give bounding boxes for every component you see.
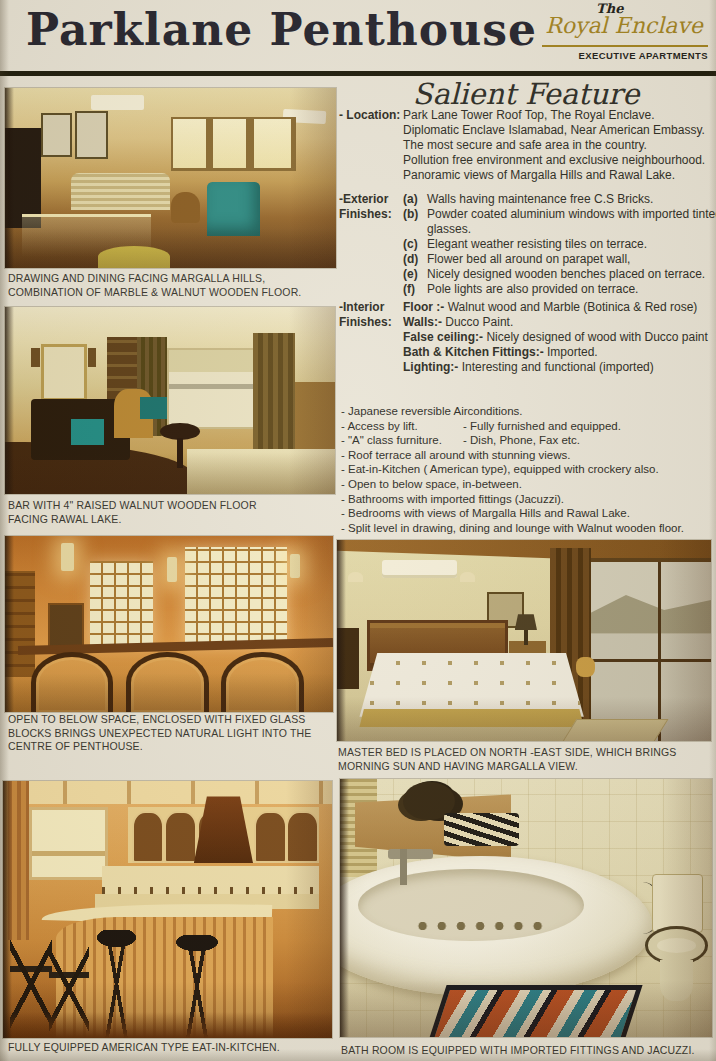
caption-kitchen: FULLY EQUIPPED AMERICAN TYPE EAT-IN-KITC… [8, 1041, 338, 1055]
interior-finishes-block: -Interior Finishes: Floor :- Walnut wood… [339, 300, 716, 375]
wall-picture-shape [75, 111, 109, 158]
feature-text: - Japanese reversible Airconditions. [341, 404, 523, 419]
window-shape [173, 119, 206, 168]
curtain-tieback-shape [576, 657, 595, 677]
item-key: (b) [403, 207, 427, 237]
ottoman-shape [98, 246, 171, 268]
feature-text: - Bathrooms with imported fittings (Jacu… [341, 492, 564, 507]
item-text: Elegant weather resisting tiles on terra… [427, 237, 716, 252]
item-text: Powder coated aluminium windows with imp… [427, 207, 716, 237]
toilet-tank-shape [652, 874, 702, 933]
feature-text: - Split level in drawing, dining and lou… [341, 521, 684, 536]
window-mullion-shape [588, 659, 711, 662]
exterior-item: (f)Pole lights are also provided on terr… [403, 282, 716, 297]
item-text: Interesting and functional (imported) [462, 360, 654, 374]
dresser-shape [337, 628, 359, 688]
item-key: (e) [403, 267, 427, 282]
cabinet-door-shape [164, 811, 197, 862]
item-text: Ducco Paint. [445, 315, 513, 329]
photo-kitchen [3, 781, 332, 1038]
salient-feature-heading: Salient Feature [340, 77, 712, 111]
interior-item: Walls:- Ducco Paint. [403, 315, 716, 330]
feature-text: - Open to below space, in-between. [341, 477, 522, 492]
interior-items: Floor :- Walnut wood and Marble (Botinic… [403, 300, 716, 375]
towel-stack-shape [444, 813, 518, 847]
exterior-label-line2: Finishes: [339, 207, 403, 222]
exterior-item: (e)Nicely designed wooden benches placed… [403, 267, 716, 282]
window-sill-shape [32, 851, 104, 856]
wall-picture-shape [41, 113, 71, 157]
lake-view-window-shape [167, 348, 257, 429]
cabinet-door-shape [286, 811, 319, 862]
location-lines: Park Lane Tower Roof Top, The Royal Encl… [403, 108, 705, 183]
window-mullion-shape [658, 562, 661, 741]
feature-text: - "A" class furniture. [341, 433, 463, 448]
location-line: The most secure and safe area in the cou… [403, 138, 705, 153]
royal-enclave-logo: The Royal Enclave EXECUTIVE APARTMENTS [538, 1, 710, 67]
sofa-shape [71, 173, 170, 211]
glossy-floor-shape [187, 449, 336, 494]
exterior-item: (a)Walls having maintenance free C.S Bri… [403, 192, 716, 207]
page-title: Parklane Penthouse [26, 4, 537, 55]
glass-block-wall-shape [90, 561, 152, 645]
feature-text: - Access by lift. [341, 419, 463, 434]
railing-arch-shape [126, 652, 208, 712]
exterior-label-line1: -Exterior [339, 192, 403, 207]
feature-text: - Eat-in-Kitchen ( American type), equip… [341, 462, 659, 477]
rug-shape [561, 719, 668, 741]
interior-label-line1: -Interior [339, 300, 403, 315]
teal-armchair-shape [207, 182, 260, 236]
wall-lamp-shape [61, 543, 74, 571]
air-conditioner-shape [91, 95, 144, 109]
sconce-shape [88, 348, 96, 367]
side-table-shape [171, 192, 201, 223]
feature-text: - Dish, Phone, Fax etc. [463, 433, 580, 448]
location-line: Pollution free environment and exclusive… [403, 153, 705, 168]
header-divider-rule [0, 71, 716, 76]
blind-shape [169, 350, 255, 371]
window-shape [254, 119, 292, 168]
exterior-items: (a)Walls having maintenance free C.S Bri… [403, 192, 716, 297]
shower-hose-shape [400, 849, 407, 885]
exterior-item: (b)Powder coated aluminium windows with … [403, 207, 716, 237]
curtain-shape [253, 333, 296, 455]
railing-arch-shape [31, 652, 113, 712]
item-key: (d) [403, 252, 427, 267]
item-key: Bath & Kitchen Fittings:- [403, 345, 544, 359]
interior-item: Lighting:- Interesting and functional (i… [403, 360, 716, 375]
floral-bedspread-shape [359, 653, 583, 717]
bed-skirt-shape [359, 709, 583, 727]
item-text: Walnut wood and Marble (Botinica & Red r… [448, 300, 698, 314]
toilet-seat-shape [645, 926, 708, 965]
logo-underline-rule [542, 45, 708, 47]
hill-silhouette-shape [588, 591, 711, 634]
item-text: Flower bed all around on parapet wall, [427, 252, 716, 267]
feature-row: - Roof terrace all around with stunning … [341, 448, 716, 463]
logo-name-text: Royal Enclave [538, 13, 710, 38]
caption-bar: BAR WITH 4" RAISED WALNUT WOODEN FLOOR F… [8, 499, 338, 526]
interior-label: -Interior Finishes: [339, 300, 403, 375]
sconce-shape [31, 348, 39, 367]
interior-item: Floor :- Walnut wood and Marble (Botinic… [403, 300, 716, 315]
location-line: Panoramic views of Margalla Hills and Ra… [403, 168, 705, 183]
margalla-view-window-shape [584, 558, 711, 741]
teal-cushion-shape [140, 397, 166, 419]
kitchen-window-shape [29, 807, 107, 880]
location-line: Park Lane Tower Roof Top, The Royal Encl… [403, 108, 705, 123]
item-text: Pole lights are also provided on terrace… [427, 282, 716, 297]
feature-text: - Fully furnished and equipped. [463, 419, 621, 434]
photo-master-bedroom [337, 540, 711, 741]
location-label: - Location: [339, 108, 403, 183]
window-shape [213, 119, 246, 168]
wall-lamp-shape [290, 554, 300, 579]
item-key: Lighting:- [403, 360, 458, 374]
wall-lamp-shape [167, 557, 177, 582]
item-text: Nicely designed wooden benches placed on… [427, 267, 716, 282]
interior-label-line2: Finishes: [339, 315, 403, 330]
mirror-shape [41, 344, 87, 400]
item-key: False ceiling:- [403, 330, 483, 344]
feature-list: - Japanese reversible Airconditions. - A… [341, 404, 716, 535]
curtain-shape [3, 781, 29, 940]
feature-row: - Open to below space, in-between. [341, 477, 716, 492]
table-lamp-shape [515, 614, 537, 630]
sconce-shape [348, 572, 363, 582]
photo-bar [5, 307, 335, 494]
caption-drawing-dining: DRAWING AND DINING FACING MARGALLA HILLS… [8, 272, 338, 299]
feature-row: - Split level in drawing, dining and lou… [341, 521, 716, 536]
sconce-shape [460, 572, 475, 582]
feature-row: - Eat-in-Kitchen ( American type), equip… [341, 462, 716, 477]
brochure-page: { "palette": {"gold": "#a3831e", "ink": … [0, 0, 716, 1061]
lamp-stem-shape [524, 630, 528, 644]
faucet-shape [388, 849, 433, 859]
caption-bathroom: BATH ROOM IS EQUIPPED WITH IMPORTED FITT… [341, 1044, 715, 1058]
tub-jets-shape [413, 920, 550, 931]
photo-drawing-dining [5, 88, 336, 268]
caption-open-to-below: OPEN TO BELOW SPACE, ENCLOSED WITH FIXED… [8, 713, 338, 754]
location-line: Diplomatic Enclave Islamabad, Near Ameri… [403, 123, 705, 138]
teal-cushion-shape [71, 419, 104, 445]
ceiling-shape [3, 781, 332, 804]
toilet-base-shape [660, 960, 693, 1001]
interior-item: Bath & Kitchen Fittings:- Imported. [403, 345, 716, 360]
feature-row: - Bedrooms with views of Margalla Hills … [341, 506, 716, 521]
furniture-shape [295, 382, 335, 457]
glass-block-wall-shape [185, 547, 287, 646]
window-band-shape [171, 117, 297, 171]
lake-horizon-shape [169, 384, 255, 389]
feature-text: - Bedrooms with views of Margalla Hills … [341, 506, 630, 521]
air-conditioner-shape [382, 560, 457, 578]
item-key: (c) [403, 237, 427, 252]
floor-shape [3, 1012, 332, 1038]
cabinet-door-shape [254, 811, 287, 862]
railing-arch-shape [221, 652, 303, 712]
feature-text: - Roof terrace all around with stunning … [341, 448, 570, 463]
item-text: Nicely designed of wood with Ducco paint [486, 330, 707, 344]
item-text: Imported. [547, 345, 598, 359]
item-key: Walls:- [403, 315, 442, 329]
item-key: (a) [403, 192, 427, 207]
exterior-label: -Exterior Finishes: [339, 192, 403, 297]
interior-item: False ceiling:- Nicely designed of wood … [403, 330, 716, 345]
item-key: Floor :- [403, 300, 444, 314]
feature-row: - Japanese reversible Airconditions. [341, 404, 716, 419]
cabinet-shape [5, 571, 35, 677]
exterior-item: (c)Elegant weather resisting tiles on te… [403, 237, 716, 252]
photo-bathroom [340, 779, 712, 1037]
photo-open-to-below [5, 536, 333, 712]
location-block: - Location: Park Lane Tower Roof Top, Th… [339, 108, 716, 183]
feature-row: - Bathrooms with imported fittings (Jacu… [341, 492, 716, 507]
caption-master-bed: MASTER BED IS PLACED ON NORTH -EAST SIDE… [338, 746, 712, 773]
exterior-finishes-block: -Exterior Finishes: (a)Walls having main… [339, 192, 716, 297]
kilim-rug-shape [427, 985, 642, 1037]
feature-row: - "A" class furniture.- Dish, Phone, Fax… [341, 433, 716, 448]
cabinet-door-shape [132, 811, 165, 862]
item-text: Walls having maintenance free C.S Bricks… [427, 192, 716, 207]
logo-subtitle-text: EXECUTIVE APARTMENTS [538, 50, 708, 61]
exterior-item: (d)Flower bed all around on parapet wall… [403, 252, 716, 267]
item-key: (f) [403, 282, 427, 297]
feature-row: - Access by lift.- Fully furnished and e… [341, 419, 716, 434]
table-leg-shape [177, 438, 184, 468]
